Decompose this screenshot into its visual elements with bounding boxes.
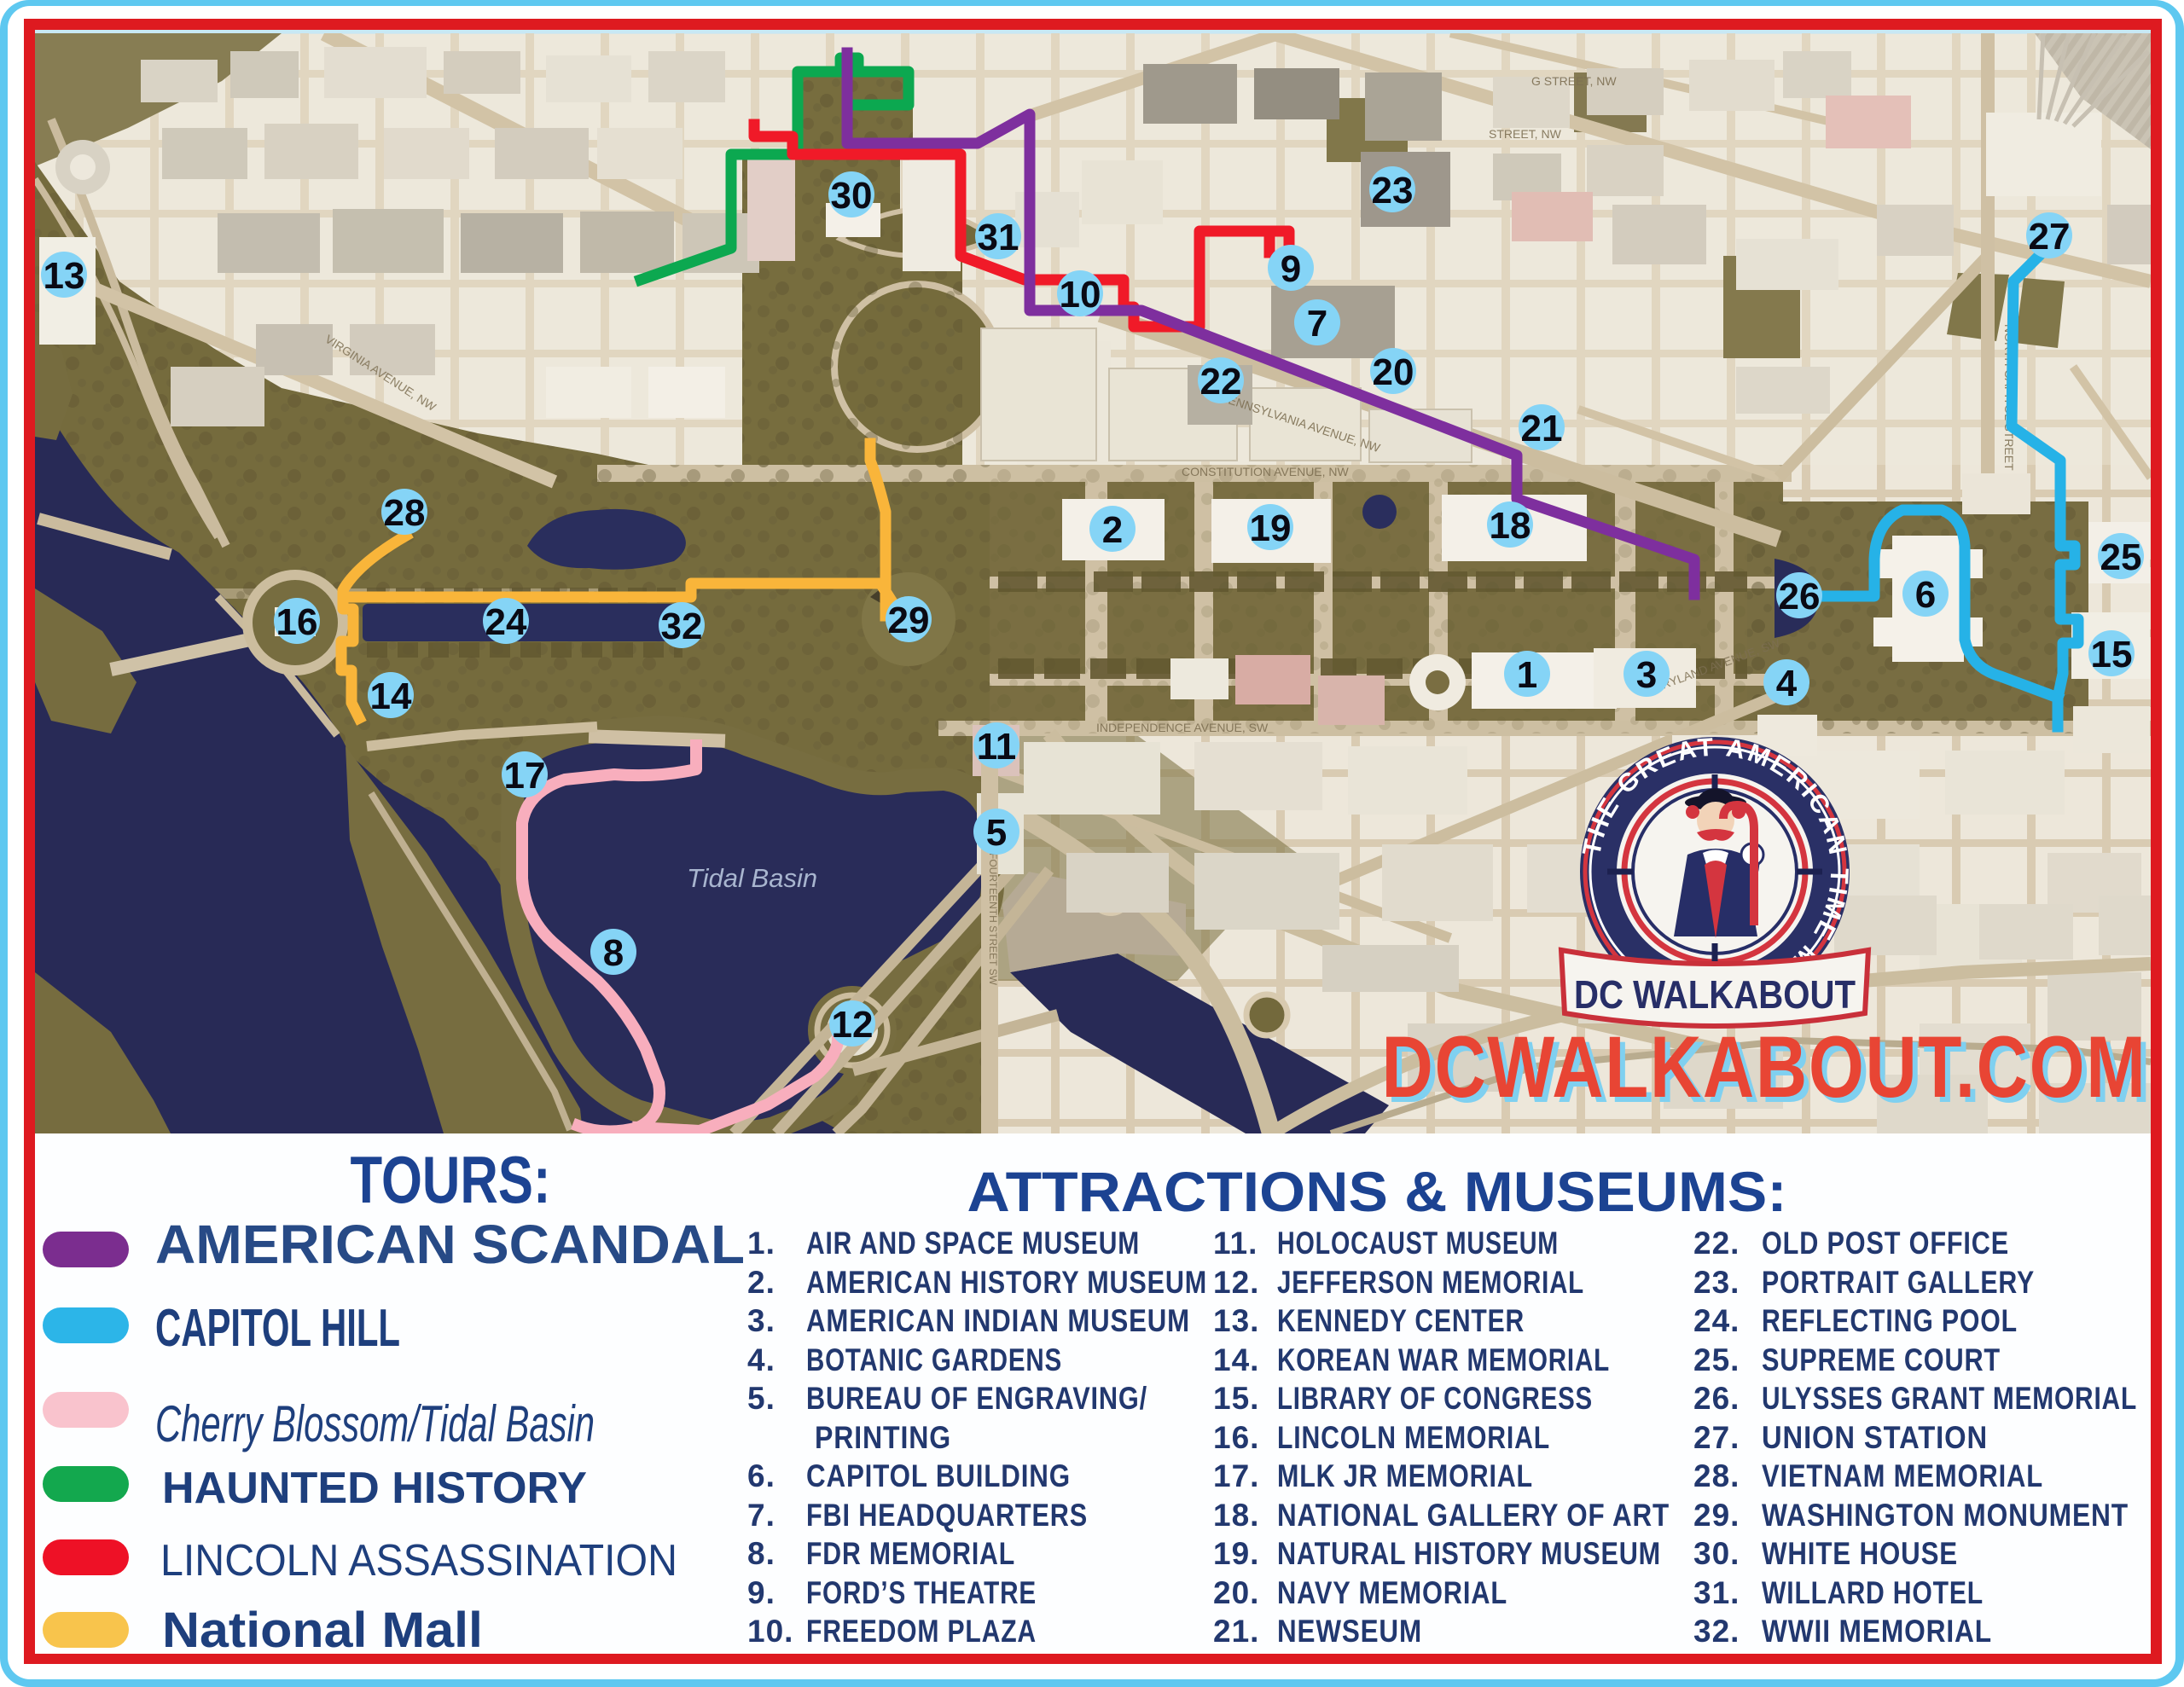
svg-text:6: 6	[1915, 574, 1936, 616]
svg-text:MLK JR MEMORIAL: MLK JR MEMORIAL	[1277, 1458, 1533, 1493]
svg-text:5: 5	[986, 812, 1007, 854]
svg-text:20: 20	[1373, 351, 1414, 393]
svg-text:NAVY MEMORIAL: NAVY MEMORIAL	[1277, 1575, 1507, 1610]
svg-text:14: 14	[370, 675, 412, 717]
svg-text:KOREAN WAR MEMORIAL: KOREAN WAR MEMORIAL	[1277, 1342, 1610, 1377]
svg-text:KENNEDY CENTER: KENNEDY CENTER	[1277, 1303, 1525, 1338]
svg-text:WHITE HOUSE: WHITE HOUSE	[1762, 1536, 1958, 1571]
svg-text:26.: 26.	[1693, 1381, 1740, 1416]
svg-text:LINCOLN ASSASSINATION: LINCOLN ASSASSINATION	[160, 1536, 677, 1586]
svg-text:29.: 29.	[1693, 1498, 1740, 1533]
svg-text:PRINTING: PRINTING	[815, 1420, 951, 1455]
svg-text:PORTRAIT GALLERY: PORTRAIT GALLERY	[1762, 1265, 2035, 1300]
svg-text:INDEPENDENCE AVENUE, SW: INDEPENDENCE AVENUE, SW	[1096, 721, 1269, 734]
svg-text:18.: 18.	[1213, 1498, 1259, 1533]
svg-text:31.: 31.	[1693, 1575, 1740, 1610]
svg-text:26: 26	[1779, 576, 1821, 617]
svg-text:ATTRACTIONS & MUSEUMS:: ATTRACTIONS & MUSEUMS:	[967, 1160, 1787, 1223]
svg-text:1: 1	[1517, 654, 1537, 696]
svg-text:12.: 12.	[1213, 1265, 1259, 1300]
svg-text:VIETNAM MEMORIAL: VIETNAM MEMORIAL	[1762, 1458, 2043, 1493]
svg-text:28.: 28.	[1693, 1458, 1740, 1493]
svg-text:8.: 8.	[747, 1536, 775, 1571]
svg-text:CAPITOL BUILDING: CAPITOL BUILDING	[806, 1458, 1071, 1493]
svg-text:LINCOLN MEMORIAL: LINCOLN MEMORIAL	[1277, 1420, 1550, 1455]
svg-text:19: 19	[1250, 507, 1292, 549]
svg-text:6.: 6.	[747, 1458, 775, 1493]
svg-text:JEFFERSON MEMORIAL: JEFFERSON MEMORIAL	[1277, 1265, 1584, 1300]
svg-text:National Mall: National Mall	[162, 1603, 483, 1658]
svg-text:22: 22	[1200, 361, 1242, 403]
svg-text:17: 17	[504, 755, 546, 797]
svg-text:24.: 24.	[1693, 1303, 1740, 1338]
svg-text:8: 8	[603, 932, 624, 974]
svg-text:Tidal Basin: Tidal Basin	[687, 863, 817, 893]
svg-text:31: 31	[978, 217, 1019, 258]
svg-text:AMERICAN HISTORY MUSEUM: AMERICAN HISTORY MUSEUM	[806, 1265, 1207, 1300]
svg-text:29: 29	[888, 600, 930, 641]
svg-text:27.: 27.	[1693, 1420, 1740, 1455]
svg-text:WILLARD HOTEL: WILLARD HOTEL	[1762, 1575, 1984, 1610]
svg-text:11.: 11.	[1213, 1226, 1258, 1261]
svg-text:3: 3	[1636, 654, 1657, 696]
svg-text:OLD POST OFFICE: OLD POST OFFICE	[1762, 1226, 2009, 1261]
svg-text:4.: 4.	[747, 1342, 775, 1377]
svg-text:12: 12	[832, 1004, 874, 1046]
svg-text:AIR AND SPACE MUSEUM: AIR AND SPACE MUSEUM	[806, 1226, 1140, 1261]
svg-text:20.: 20.	[1213, 1575, 1259, 1610]
svg-text:28: 28	[384, 492, 426, 534]
svg-text:5.: 5.	[747, 1381, 775, 1416]
svg-text:2: 2	[1102, 509, 1123, 551]
svg-text:18: 18	[1490, 505, 1531, 547]
svg-text:24: 24	[485, 601, 527, 643]
svg-text:15.: 15.	[1213, 1381, 1259, 1416]
svg-text:7.: 7.	[747, 1498, 775, 1533]
svg-text:11: 11	[977, 726, 1017, 768]
svg-text:HAUNTED HISTORY: HAUNTED HISTORY	[162, 1464, 587, 1513]
svg-text:15: 15	[2091, 634, 2133, 675]
svg-text:LIBRARY OF CONGRESS: LIBRARY OF CONGRESS	[1277, 1381, 1593, 1416]
svg-text:CONSTITUTION AVENUE, NW: CONSTITUTION AVENUE, NW	[1182, 465, 1350, 478]
svg-text:22.: 22.	[1693, 1226, 1740, 1261]
svg-text:FORD’S THEATRE: FORD’S THEATRE	[806, 1575, 1037, 1610]
svg-text:9: 9	[1281, 248, 1301, 290]
svg-text:30.: 30.	[1693, 1536, 1740, 1571]
svg-text:ULYSSES GRANT MEMORIAL: ULYSSES GRANT MEMORIAL	[1762, 1381, 2137, 1416]
svg-text:NATURAL HISTORY MUSEUM: NATURAL HISTORY MUSEUM	[1277, 1536, 1661, 1571]
svg-text:FBI HEADQUARTERS: FBI HEADQUARTERS	[806, 1498, 1088, 1533]
svg-text:23.: 23.	[1693, 1265, 1740, 1300]
svg-text:14.: 14.	[1213, 1342, 1259, 1377]
svg-text:DCWALKABOUT.COM: DCWALKABOUT.COM	[1382, 1018, 2147, 1116]
svg-text:REFLECTING POOL: REFLECTING POOL	[1762, 1303, 2018, 1338]
svg-text:CAPITOL HILL: CAPITOL HILL	[155, 1299, 400, 1358]
svg-text:19.: 19.	[1213, 1536, 1259, 1571]
svg-text:7: 7	[1307, 303, 1327, 345]
svg-text:STREET, NW: STREET, NW	[1489, 127, 1562, 141]
svg-text:16.: 16.	[1213, 1420, 1259, 1455]
svg-text:23: 23	[1372, 170, 1414, 212]
svg-text:BOTANIC GARDENS: BOTANIC GARDENS	[806, 1342, 1062, 1377]
svg-text:UNION STATION: UNION STATION	[1762, 1420, 1988, 1455]
svg-text:1.: 1.	[747, 1226, 775, 1261]
svg-text:4: 4	[1776, 663, 1798, 704]
svg-text:13: 13	[44, 255, 85, 297]
svg-text:NEWSEUM: NEWSEUM	[1277, 1614, 1422, 1649]
svg-text:32.: 32.	[1693, 1614, 1740, 1649]
svg-text:30: 30	[831, 175, 873, 217]
svg-text:AMERICAN SCANDAL: AMERICAN SCANDAL	[155, 1214, 745, 1275]
svg-text:NATIONAL GALLERY OF ART: NATIONAL GALLERY OF ART	[1277, 1498, 1670, 1533]
svg-text:FREEDOM PLAZA: FREEDOM PLAZA	[806, 1614, 1037, 1649]
svg-text:Cherry Blossom/Tidal Basin: Cherry Blossom/Tidal Basin	[155, 1395, 595, 1452]
svg-text:WASHINGTON MONUMENT: WASHINGTON MONUMENT	[1762, 1498, 2129, 1533]
svg-text:25.: 25.	[1693, 1342, 1740, 1377]
svg-text:21.: 21.	[1213, 1614, 1259, 1649]
svg-text:FDR MEMORIAL: FDR MEMORIAL	[806, 1536, 1015, 1571]
svg-text:3.: 3.	[747, 1303, 775, 1338]
svg-text:BUREAU OF ENGRAVING/: BUREAU OF ENGRAVING/	[806, 1381, 1147, 1416]
svg-text:16: 16	[276, 601, 318, 643]
svg-text:2.: 2.	[747, 1265, 775, 1300]
svg-text:9.: 9.	[747, 1575, 775, 1610]
svg-text:TOURS:: TOURS:	[351, 1142, 551, 1217]
svg-text:WWII MEMORIAL: WWII MEMORIAL	[1762, 1614, 1992, 1649]
svg-text:AMERICAN INDIAN MUSEUM: AMERICAN INDIAN MUSEUM	[806, 1303, 1190, 1338]
svg-text:32: 32	[661, 606, 703, 647]
svg-text:21: 21	[1521, 408, 1563, 449]
svg-text:25: 25	[2100, 536, 2142, 578]
svg-text:DC WALKABOUT: DC WALKABOUT	[1574, 972, 1856, 1017]
svg-text:HOLOCAUST MUSEUM: HOLOCAUST MUSEUM	[1277, 1226, 1559, 1261]
svg-text:10.: 10.	[747, 1614, 793, 1649]
svg-text:13.: 13.	[1213, 1303, 1259, 1338]
svg-text:FOURTEENTH STREET SW: FOURTEENTH STREET SW	[987, 853, 999, 986]
svg-text:17.: 17.	[1213, 1458, 1259, 1493]
svg-text:SUPREME COURT: SUPREME COURT	[1762, 1342, 2001, 1377]
svg-text:10: 10	[1060, 274, 1101, 316]
svg-text:27: 27	[2029, 216, 2071, 258]
svg-text:G STREET, NW: G STREET, NW	[1531, 74, 1617, 88]
